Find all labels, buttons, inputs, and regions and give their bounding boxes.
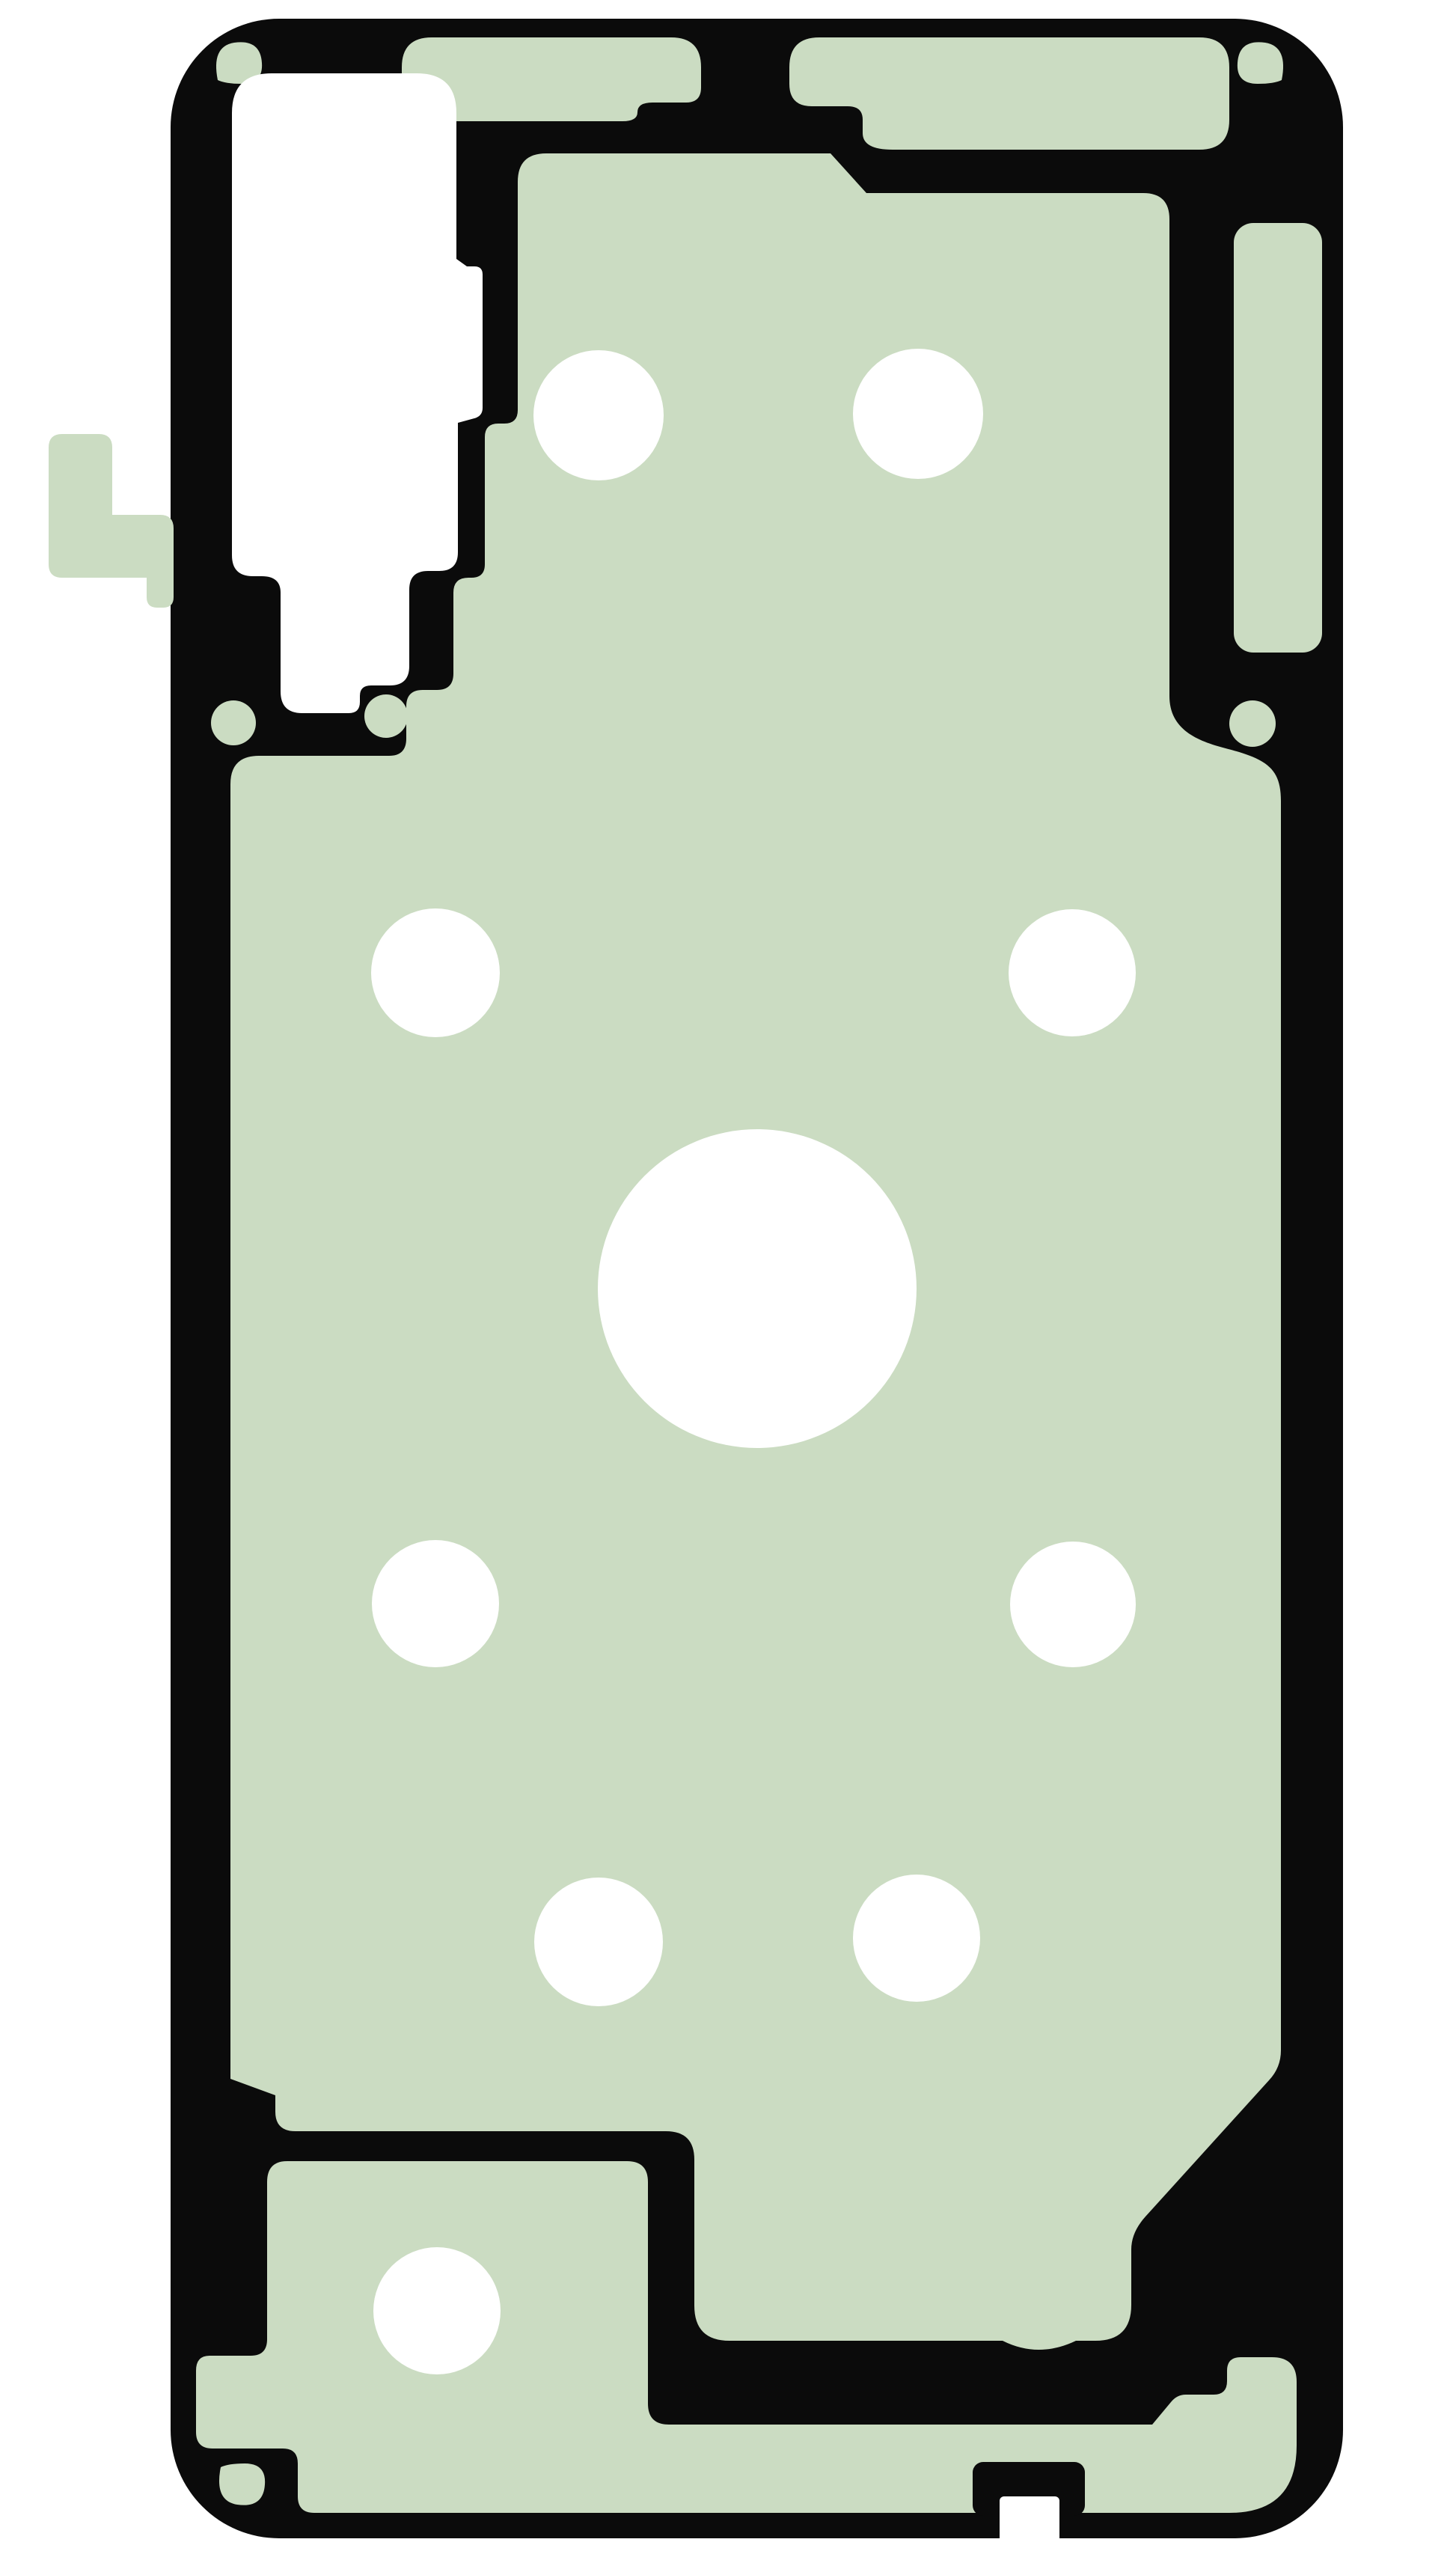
- hole-bottom-left: [534, 1878, 663, 2006]
- alignment-dot-right: [1229, 700, 1276, 747]
- hole-bottom-right: [853, 1875, 980, 2002]
- corner-dot-bottom-left: [219, 2463, 265, 2505]
- side-strip-right: [1234, 223, 1322, 653]
- hole-mid-upper-right: [1009, 909, 1136, 1036]
- hole-top-right: [853, 349, 983, 479]
- adhesive-sticker-graphic: [0, 0, 1456, 2560]
- pull-tab-left: [49, 434, 174, 608]
- product-image-adhesive-sticker: [0, 0, 1456, 2560]
- hole-mid-lower-right: [1010, 1542, 1136, 1667]
- hole-center-large: [598, 1129, 917, 1448]
- notch-cutout-bottom: [1000, 2496, 1059, 2560]
- hole-top-left: [533, 350, 664, 480]
- alignment-dot-camera-left: [211, 700, 256, 745]
- corner-dot-top-right: [1238, 42, 1283, 84]
- hole-mid-lower-left: [372, 1540, 499, 1667]
- hole-bottom-section: [373, 2247, 501, 2374]
- hole-mid-upper-left: [371, 908, 500, 1037]
- alignment-dot-camera-right: [364, 694, 408, 738]
